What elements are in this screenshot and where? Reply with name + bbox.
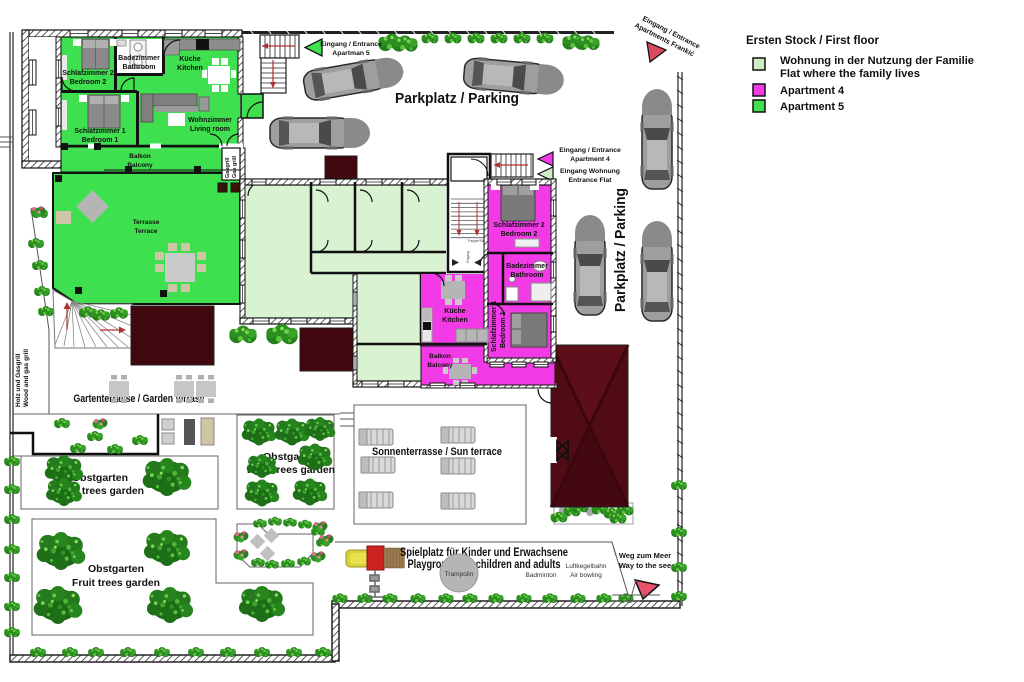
svg-text:Eingang / Entrance: Eingang / Entrance: [320, 41, 382, 48]
svg-text:Spielplatz für Kinder und Erw: Spielplatz für Kinder und Erwachsene: [400, 547, 568, 559]
svg-text:Entrance Flat: Entrance Flat: [568, 177, 612, 184]
svg-text:Terrace: Terrace: [134, 228, 157, 235]
svg-text:Apartment 5: Apartment 5: [780, 101, 844, 113]
svg-text:Eingang Wohnung: Eingang Wohnung: [560, 168, 620, 175]
svg-text:Holz und Gasgrill: Holz und Gasgrill: [15, 353, 22, 407]
svg-text:Ersten Stock / First floor: Ersten Stock / First floor: [746, 35, 880, 47]
svg-text:Gas grill: Gas grill: [232, 156, 238, 178]
svg-text:Fruit trees garden: Fruit trees garden: [72, 577, 160, 589]
svg-text:Luftkegelbahn: Luftkegelbahn: [566, 563, 607, 570]
svg-text:Obstgarten: Obstgarten: [88, 563, 144, 575]
svg-text:Kitchen: Kitchen: [442, 317, 468, 324]
svg-text:Badminton: Badminton: [525, 572, 556, 579]
svg-text:Küche: Küche: [444, 308, 466, 315]
svg-text:Parkplatz / Parking: Parkplatz / Parking: [612, 188, 629, 312]
svg-text:Kitchen: Kitchen: [177, 65, 203, 72]
svg-text:Bathroom: Bathroom: [122, 64, 155, 71]
svg-text:Trampolin: Trampolin: [445, 571, 474, 578]
svg-text:Playground for children and ad: Playground for children and adults: [408, 559, 561, 571]
svg-text:Schlafzimmer 2: Schlafzimmer 2: [62, 70, 113, 77]
svg-text:Bedroom 1: Bedroom 1: [82, 137, 119, 144]
svg-text:Bedroom 1: Bedroom 1: [500, 311, 507, 348]
svg-text:Schlafzimmer 1: Schlafzimmer 1: [491, 301, 498, 352]
svg-text:Wohnzimmer: Wohnzimmer: [188, 117, 232, 124]
svg-text:Badezimmer: Badezimmer: [506, 263, 548, 270]
svg-text:Bedroom 2: Bedroom 2: [70, 79, 107, 86]
svg-text:Balkon: Balkon: [429, 353, 451, 360]
svg-text:Apartman 5: Apartman 5: [332, 50, 370, 57]
svg-text:Air bowling: Air bowling: [570, 572, 602, 579]
svg-text:Way to the see: Way to the see: [619, 561, 671, 570]
svg-text:Balkon: Balkon: [129, 153, 151, 160]
svg-text:Wood and gas grill: Wood and gas grill: [23, 349, 30, 407]
svg-text:Apartment 4: Apartment 4: [780, 85, 845, 97]
svg-text:Eingang: Eingang: [466, 251, 470, 263]
svg-text:Flat where the family lives: Flat where the family lives: [780, 68, 920, 80]
svg-text:Bedroom 2: Bedroom 2: [501, 231, 538, 238]
svg-text:Eingang / Entrance: Eingang / Entrance: [559, 147, 621, 154]
svg-text:Badezimmer: Badezimmer: [118, 55, 160, 62]
svg-text:Sonnenterrasse / Sun terrace: Sonnenterrasse / Sun terrace: [372, 446, 502, 458]
svg-text:Bathroom: Bathroom: [510, 272, 543, 279]
svg-text:Gasgrill: Gasgrill: [225, 157, 231, 178]
svg-text:Schlafzimmer 2: Schlafzimmer 2: [493, 222, 544, 229]
svg-text:Wohnung in der Nutzung der Fam: Wohnung in der Nutzung der Familie: [780, 55, 974, 67]
svg-text:Weg zum Meer: Weg zum Meer: [619, 551, 671, 560]
svg-text:Terrasse: Terrasse: [133, 219, 160, 226]
svg-text:Apartment 4: Apartment 4: [570, 156, 610, 163]
svg-text:Küche: Küche: [179, 56, 201, 63]
svg-text:Living room: Living room: [190, 126, 230, 133]
svg-text:Parkplatz / Parking: Parkplatz / Parking: [395, 90, 519, 107]
svg-text:Balcony: Balcony: [427, 362, 453, 369]
svg-text:Schlafzimmer 1: Schlafzimmer 1: [74, 128, 125, 135]
